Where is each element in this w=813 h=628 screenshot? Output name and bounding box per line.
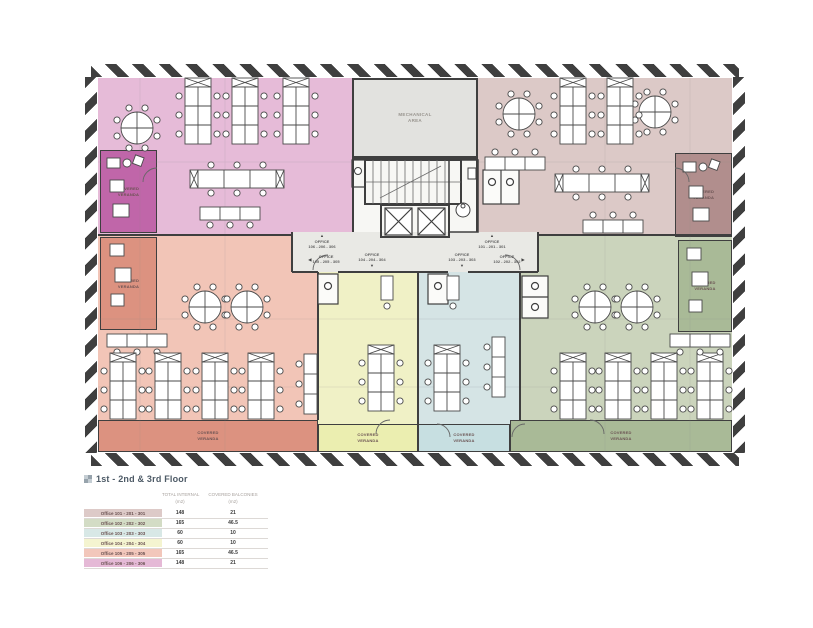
desk-row [484, 337, 505, 397]
legend-title-text: 1st - 2nd & 3rd Floor [96, 474, 188, 484]
internal-value: 165 [162, 550, 198, 556]
desk-bench [425, 345, 469, 411]
legend: 1st - 2nd & 3rd Floor TOTAL INTERNAL(m2)… [84, 474, 274, 569]
desk-row [107, 334, 167, 355]
desk-bench [101, 353, 145, 419]
desk-bench [688, 353, 732, 419]
desk-bench [274, 78, 318, 144]
desk-bench [146, 353, 190, 419]
desk-bench [551, 78, 595, 144]
veranda-table [110, 244, 124, 256]
up-arrow-icon: ▲ [320, 233, 324, 238]
veranda-table [111, 294, 124, 306]
right-arrow-icon: ▶ [522, 257, 525, 262]
header-spacer [84, 492, 162, 506]
balcony-value: 10 [198, 530, 268, 536]
direction-label-office-102: ▶ OFFICE 102 - 202 - 302 [483, 254, 535, 264]
desk-cluster [614, 284, 660, 330]
desk [381, 276, 393, 309]
plan-graphics [85, 62, 747, 468]
balcony-value: 21 [198, 510, 268, 516]
internal-value: 60 [162, 530, 198, 536]
desk-bench [359, 345, 403, 411]
direction-label-office-106: ▲ OFFICE 106 - 206 - 306 [298, 233, 346, 250]
sofa-set [107, 155, 144, 168]
office-row-label: Office 104 - 204 - 304 [84, 539, 162, 547]
internal-value: 148 [162, 560, 198, 566]
elevator-icon [418, 208, 445, 235]
meeting-table [190, 162, 284, 196]
desk-bench [223, 78, 267, 144]
table-row: Office 105 - 205 - 305 165 46.5 [84, 549, 268, 559]
sofa-set [683, 159, 720, 172]
direction-label-office-105: ◀ OFFICE 105 - 205 - 305 [299, 254, 349, 264]
direction-label-office-104: ▼ OFFICE 104 - 204 - 304 [349, 252, 395, 269]
down-arrow-icon: ▼ [460, 263, 464, 268]
table-row: Office 106 - 206 - 306 148 21 [84, 559, 268, 569]
veranda-table [689, 300, 702, 312]
desk-bench [239, 353, 283, 419]
veranda-table [687, 248, 701, 260]
floor-plan: MECHANICAL AREA COVERED VERANDA COVERED … [85, 62, 747, 468]
desk [447, 276, 459, 309]
core-detail [352, 160, 478, 237]
office-row-label: Office 101 - 201 - 301 [84, 509, 162, 517]
table-row: Office 102 - 202 - 302 165 46.5 [84, 519, 268, 529]
floor-plan-page: MECHANICAL AREA COVERED VERANDA COVERED … [0, 0, 813, 628]
desk-bench [598, 78, 642, 144]
elevator-icon [385, 208, 412, 235]
veranda-table [110, 180, 124, 192]
balcony-value: 10 [198, 540, 268, 546]
office-row-label: Office 105 - 205 - 305 [84, 549, 162, 557]
floor-grid-icon [84, 475, 92, 483]
desk-row [670, 334, 730, 355]
balcony-value: 46.5 [198, 550, 268, 556]
internal-value: 60 [162, 540, 198, 546]
left-arrow-icon: ◀ [308, 257, 311, 262]
area-table: TOTAL INTERNAL(m2) COVERED BALCONIES(m2)… [84, 492, 268, 569]
desk-bench [193, 353, 237, 419]
office-row-label: Office 103 - 203 - 303 [84, 529, 162, 537]
veranda-table [692, 272, 708, 286]
desk-cluster [572, 284, 618, 330]
desk-bench [176, 78, 220, 144]
wc-small [352, 160, 365, 187]
desk-bench [642, 353, 686, 419]
up-arrow-icon: ▲ [490, 233, 494, 238]
desk-row [200, 207, 260, 228]
internal-value: 148 [162, 510, 198, 516]
desk-row [296, 354, 317, 414]
veranda-table [115, 268, 131, 282]
office-row-label: Office 102 - 202 - 302 [84, 519, 162, 527]
direction-label-office-103: ▼ OFFICE 103 - 203 - 303 [439, 252, 485, 269]
internal-walls [98, 232, 732, 424]
furniture [101, 78, 732, 419]
table-row: Office 101 - 201 - 301 148 21 [84, 509, 268, 519]
header-total-internal: TOTAL INTERNAL(m2) [162, 492, 198, 506]
desk-cluster [182, 284, 228, 330]
desk-cluster [496, 91, 542, 137]
table-row: Office 104 - 204 - 304 60 10 [84, 539, 268, 549]
balcony-value: 21 [198, 560, 268, 566]
meeting-table [555, 166, 649, 200]
desk-row [583, 212, 643, 233]
internal-value: 165 [162, 520, 198, 526]
desk-row [485, 149, 545, 170]
table-row: Office 103 - 203 - 303 60 10 [84, 529, 268, 539]
veranda-table [689, 186, 703, 198]
desk-cluster [114, 105, 160, 151]
desk-bench [551, 353, 595, 419]
down-arrow-icon: ▼ [370, 263, 374, 268]
veranda-table [113, 204, 129, 217]
direction-label-office-101: ▲ OFFICE 101 - 201 - 301 [468, 233, 516, 250]
desk-cluster [224, 284, 270, 330]
balcony-value: 46.5 [198, 520, 268, 526]
table-header: TOTAL INTERNAL(m2) COVERED BALCONIES(m2) [84, 492, 268, 506]
header-covered-balconies: COVERED BALCONIES(m2) [198, 492, 268, 506]
desk-bench [596, 353, 640, 419]
office-row-label: Office 106 - 206 - 306 [84, 559, 162, 567]
legend-title: 1st - 2nd & 3rd Floor [84, 474, 274, 484]
veranda-table [693, 208, 709, 221]
